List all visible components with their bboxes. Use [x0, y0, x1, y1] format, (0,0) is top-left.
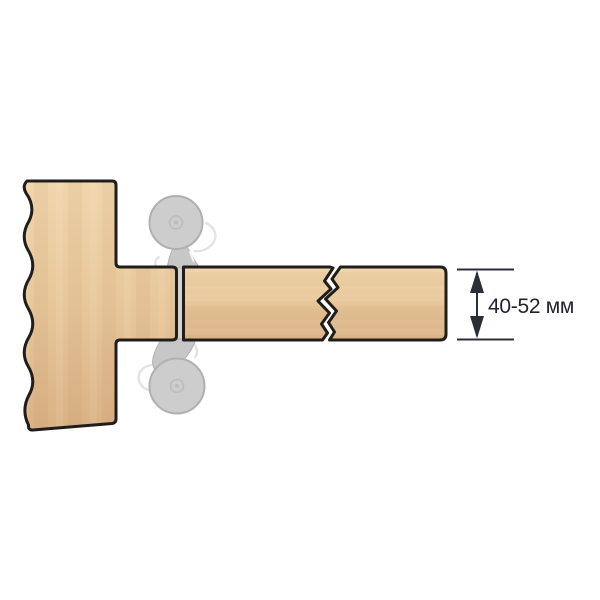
- dimension-arrowhead-down: [470, 316, 484, 339]
- dimension-callout: 40-52 мм: [457, 270, 574, 340]
- dimension-arrowhead-up: [470, 271, 484, 294]
- dimension-label: 40-52 мм: [488, 295, 574, 318]
- horizontal-rail-far: [326, 267, 447, 340]
- cutter-joint-diagram: 40-52 мм: [0, 0, 600, 600]
- horizontal-rail-near: [184, 267, 334, 340]
- diagram-canvas: 40-52 мм: [0, 0, 600, 600]
